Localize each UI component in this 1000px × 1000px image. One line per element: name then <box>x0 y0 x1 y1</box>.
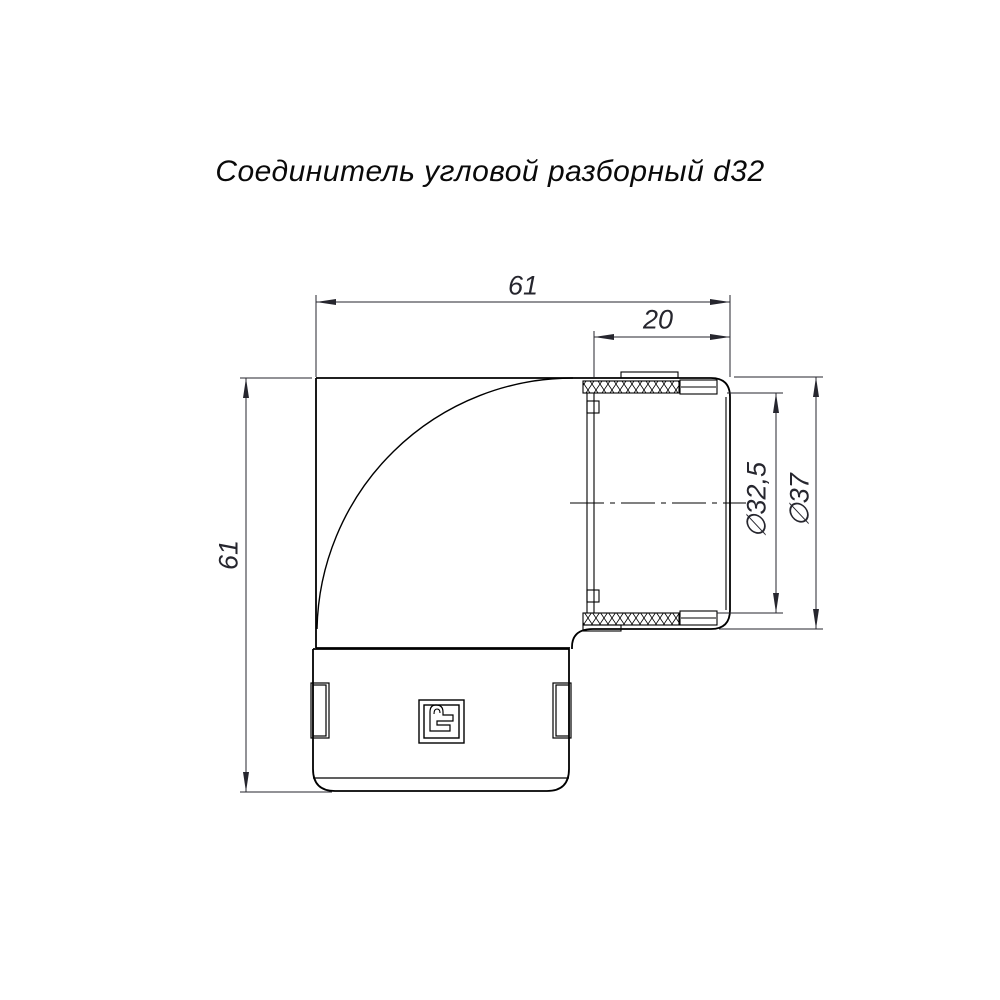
dim-overall-height-label: 61 <box>216 540 243 570</box>
dim-overall-width-label: 61 <box>508 273 538 300</box>
socket-latch-top <box>680 380 717 394</box>
dimension-lines <box>240 295 823 792</box>
drawing-canvas <box>0 0 1000 1000</box>
dim-outer-diameter-label: ∅37 <box>787 473 814 527</box>
thread-start-top <box>587 401 599 413</box>
drawing-sheet: Соединитель угловой разборный d32 61 20 … <box>0 0 1000 1000</box>
drawing-title: Соединитель угловой разборный d32 <box>215 155 764 189</box>
dim-socket-depth-label: 20 <box>643 307 673 334</box>
socket <box>583 372 726 631</box>
knurl-band-bottom <box>583 613 679 625</box>
socket-latch-bottom <box>680 611 717 625</box>
thread-start-bottom <box>587 590 599 602</box>
housing <box>311 649 571 791</box>
dim-inner-diameter-label: ∅32,5 <box>744 462 771 538</box>
knurl-band-top <box>583 381 679 393</box>
elbow-body <box>316 378 730 649</box>
brand-stamp-icon <box>419 700 464 743</box>
